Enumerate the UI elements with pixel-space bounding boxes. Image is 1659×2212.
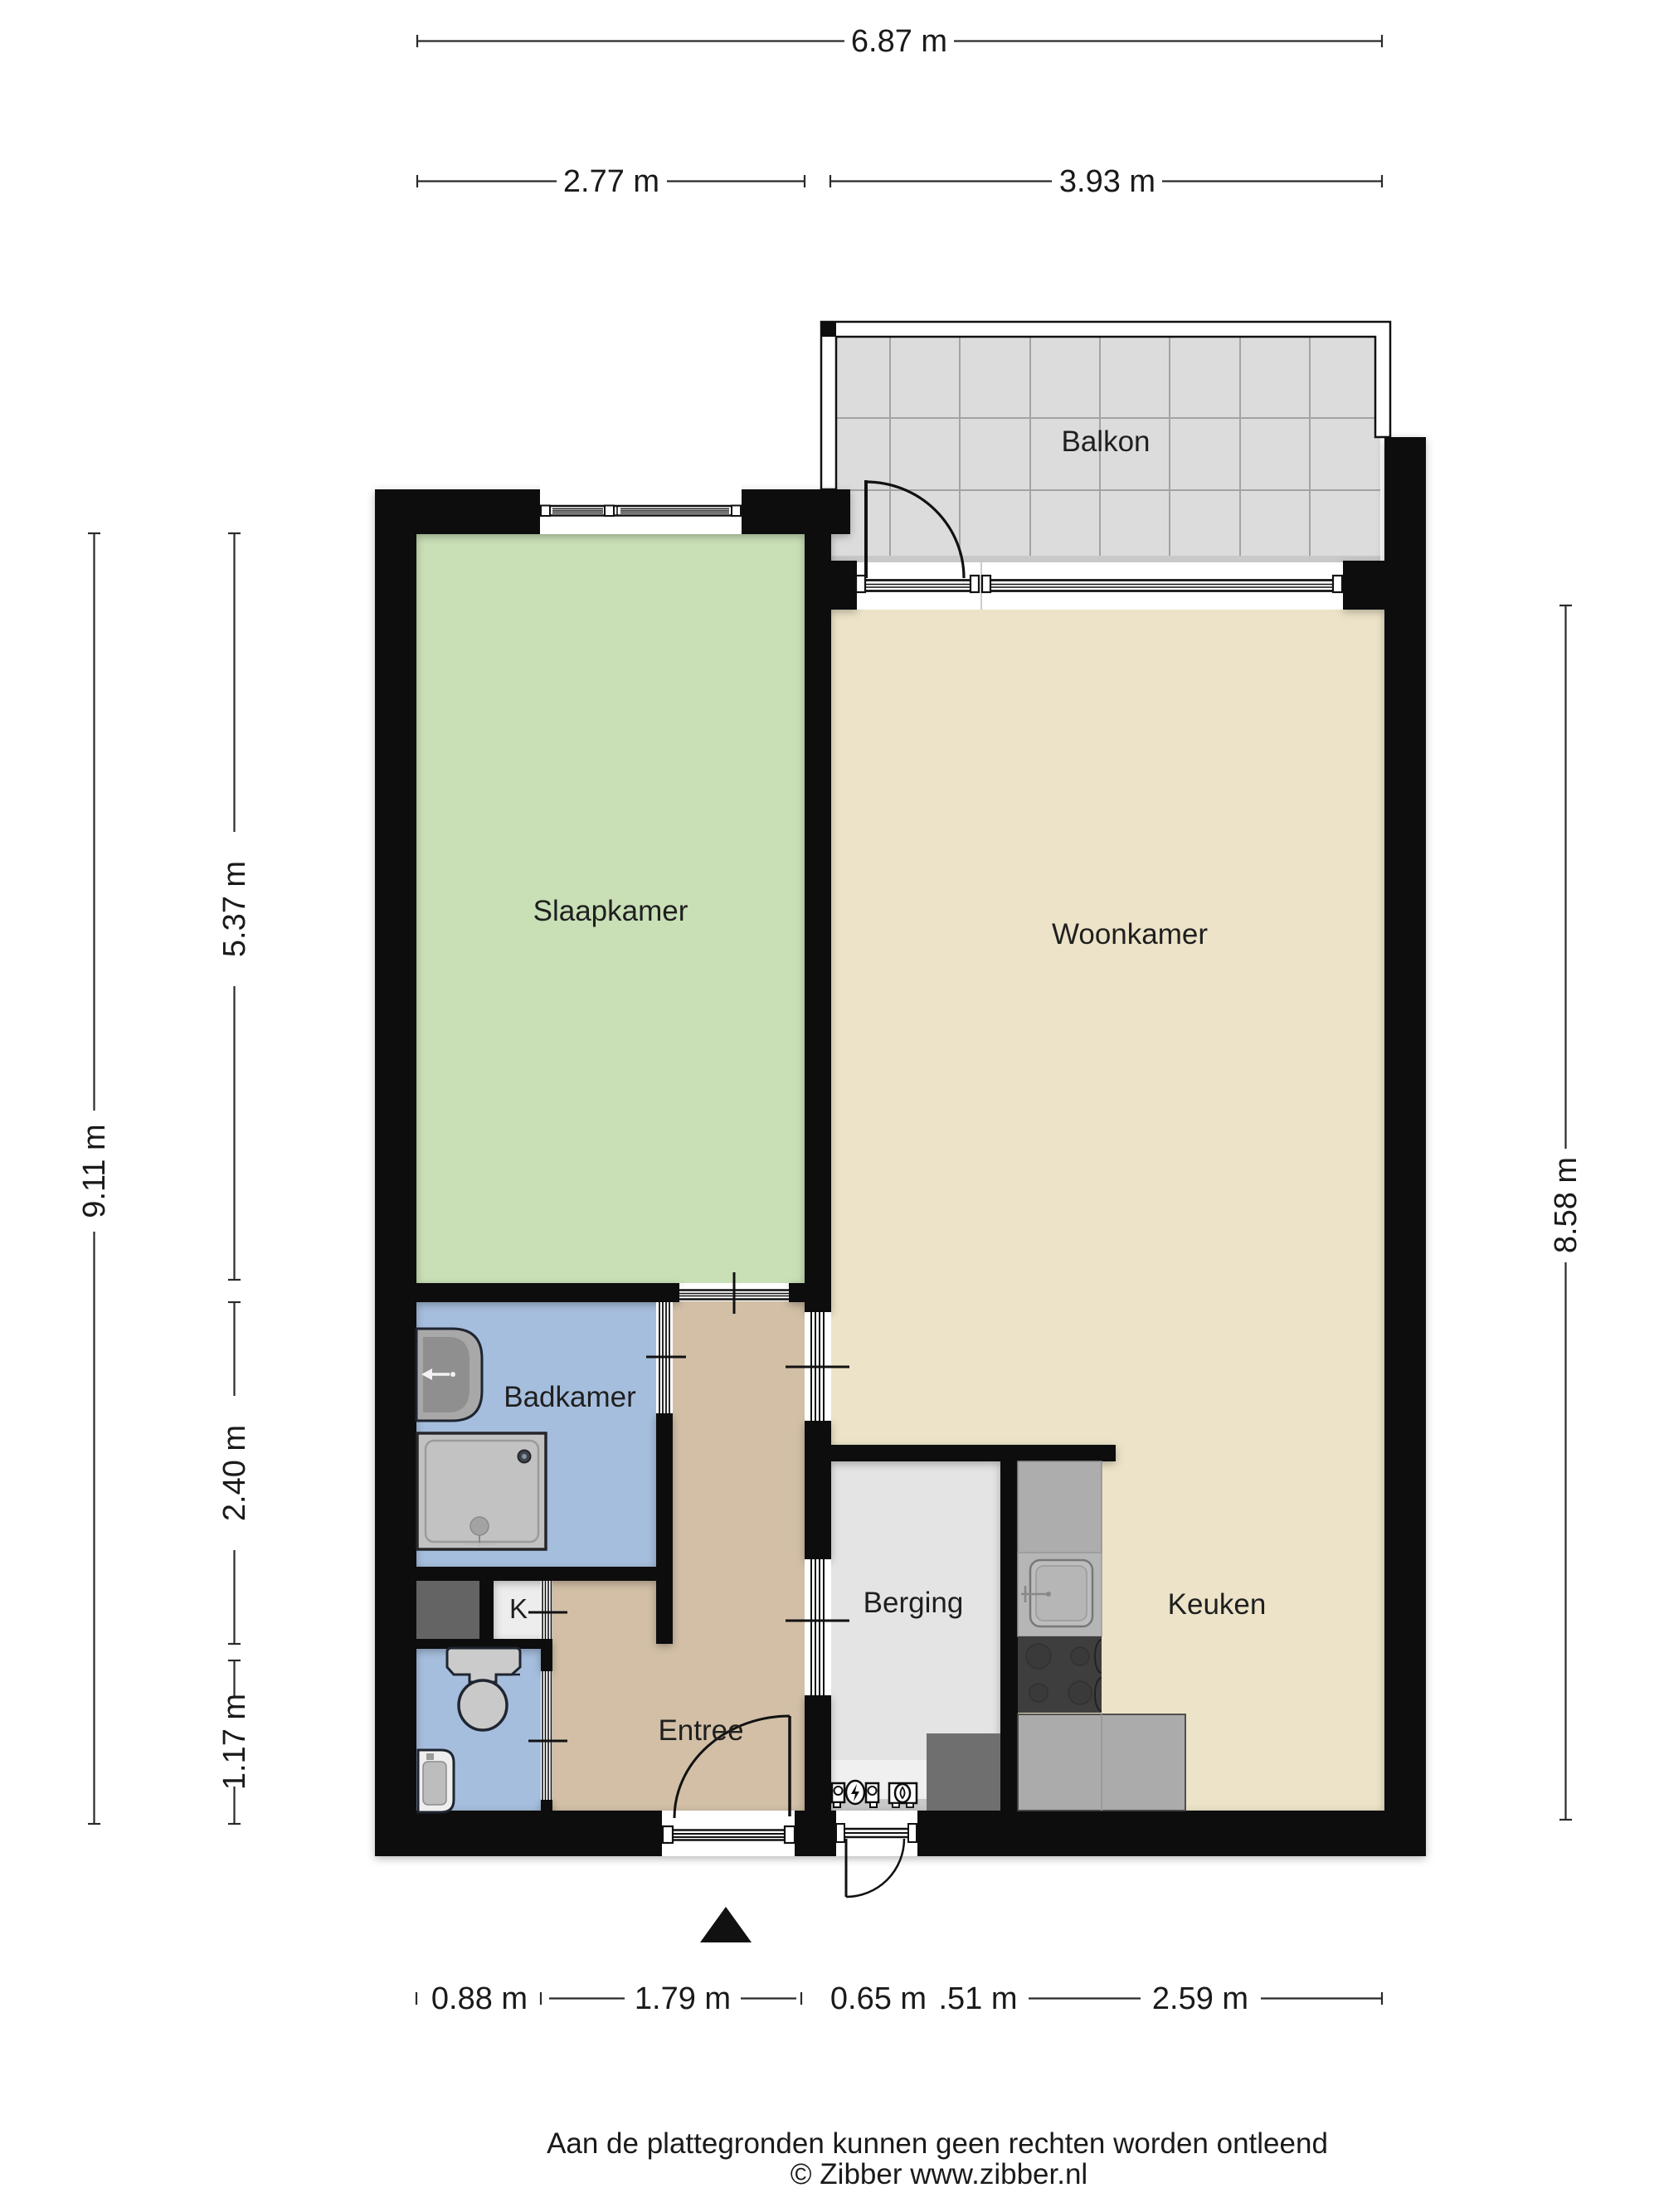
svg-text:Woonkamer: Woonkamer bbox=[1052, 918, 1208, 950]
svg-text:Badkamer: Badkamer bbox=[504, 1381, 636, 1413]
svg-text:0.88 m: 0.88 m bbox=[431, 1981, 528, 2016]
svg-text:Balkon: Balkon bbox=[1061, 425, 1150, 458]
svg-text:Aan de plattegronden kunnen ge: Aan de plattegronden kunnen geen rechten… bbox=[547, 2127, 1328, 2160]
svg-text:3.93 m: 3.93 m bbox=[1059, 164, 1155, 199]
svg-text:.51 m: .51 m bbox=[938, 1981, 1017, 2016]
svg-text:2.77 m: 2.77 m bbox=[563, 164, 659, 199]
svg-text:2.59 m: 2.59 m bbox=[1152, 1981, 1248, 2016]
svg-text:K: K bbox=[509, 1593, 528, 1624]
svg-text:1.79 m: 1.79 m bbox=[635, 1981, 731, 2016]
svg-text:2.40 m: 2.40 m bbox=[217, 1425, 252, 1521]
svg-text:Berging: Berging bbox=[864, 1587, 964, 1619]
svg-text:1.17 m: 1.17 m bbox=[217, 1694, 252, 1790]
svg-text:© Zibber www.zibber.nl: © Zibber www.zibber.nl bbox=[791, 2158, 1087, 2190]
svg-text:5.37 m: 5.37 m bbox=[217, 861, 252, 957]
svg-text:6.87 m: 6.87 m bbox=[851, 24, 947, 59]
svg-text:8.58 m: 8.58 m bbox=[1549, 1157, 1584, 1253]
svg-text:Keuken: Keuken bbox=[1168, 1588, 1267, 1621]
svg-text:0.65 m: 0.65 m bbox=[830, 1981, 927, 2016]
svg-text:9.11 m: 9.11 m bbox=[77, 1124, 112, 1218]
svg-text:Slaapkamer: Slaapkamer bbox=[533, 895, 688, 927]
svg-text:Entree: Entree bbox=[658, 1714, 743, 1747]
